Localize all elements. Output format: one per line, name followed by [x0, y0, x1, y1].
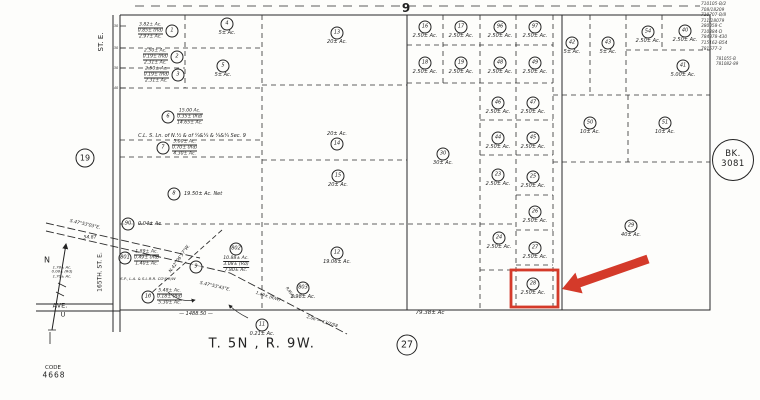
parcel-acreage-label: 20± Ac. — [327, 131, 347, 137]
parcel-number-circle: 49 — [529, 57, 542, 70]
parcel-number-circle: 10 — [142, 291, 155, 304]
parcel-acreage-label: 2.50± Ac. — [488, 33, 513, 39]
parcel-acreage-label: 2.50± Ac. — [636, 38, 661, 44]
parcel-number-circle: 23 — [492, 169, 505, 182]
parcel-number-circle: 47 — [527, 97, 540, 110]
parcel-acreage-stack: 2.50± Ac.0.19± (Rd)2.31± Ac. — [144, 67, 169, 84]
parcel-number-circle: 801 — [119, 252, 132, 265]
parcel-number-circle: 8 — [168, 188, 181, 201]
book-number: 3081 — [721, 160, 745, 170]
parcel-acreage-label: 2.50± Ac. — [413, 33, 438, 39]
parcel-number-circle: 26 — [529, 206, 542, 219]
parcel-number-circle: 14 — [331, 138, 344, 151]
parcel-number-circle: 96 — [494, 21, 507, 34]
parcel-number-circle: 6 — [162, 111, 175, 124]
parcel-acreage-label: 2.50± Ac. — [673, 37, 698, 43]
parcel-acreage-label: 0.21± Ac. — [250, 331, 275, 337]
parcel-number-circle: 802 — [230, 243, 243, 256]
parcel-acreage-label: 30± Ac. — [433, 160, 453, 166]
parcel-acreage-label: 5± Ac. — [600, 49, 617, 55]
parcel-number-circle: 2 — [171, 51, 184, 64]
parcel-acreage-label: 2.50± Ac. — [449, 69, 474, 75]
parcel-number-circle: 17 — [455, 21, 468, 34]
parcel-number-circle: 48 — [494, 57, 507, 70]
parcel-acreage-label: 2.50± Ac. — [521, 144, 546, 150]
parcel-acreage-label: 2.98± Ac. — [291, 294, 316, 300]
parcel-number-circle: 19 — [455, 57, 468, 70]
parcel-number-circle: 42 — [566, 37, 579, 50]
parcel-acreage-label: 2.50± Ac. — [488, 69, 513, 75]
parcel-number-circle: 12 — [331, 247, 344, 260]
parcel-number-circle: 51 — [659, 117, 672, 130]
parcel-acreage-label: 19.06± Ac. — [323, 259, 351, 265]
parcel-number-circle: 4 — [221, 18, 234, 31]
adjacent-page-number: 19 — [80, 154, 90, 163]
parcel-acreage-label: 2.50± Ac. — [449, 33, 474, 39]
north-arrow-icon — [48, 244, 66, 344]
parcel-acreage-stack: 10.88± Ac.3.08± (Rd)7.80± Ac. — [223, 256, 249, 273]
parcel-acreage-label: 2.50± Ac. — [523, 69, 548, 75]
parcel-number-circle: 27 — [529, 242, 542, 255]
parcel-acreage-label: 2.50± Ac. — [413, 69, 438, 75]
parcel-number-circle: 97 — [529, 21, 542, 34]
parcel-number-circle: 40 — [679, 25, 692, 38]
recorder-reference-list: 710105-B/2708/18209710707-B/8711/1807938… — [701, 2, 759, 52]
parcel-acreage-label: 2.50± Ac. — [523, 218, 548, 224]
parcel-number-circle: 44 — [492, 132, 505, 145]
parcel-number-circle: 24 — [493, 232, 506, 245]
parcel-acreage-stack: 2.50± Ac.0.19± (Rd)2.31± Ac. — [143, 49, 168, 66]
parcel-acreage-label: 2.50± Ac. — [523, 33, 548, 39]
parcel-acreage-label: 5± Ac. — [219, 30, 236, 36]
parcel-acreage-stack: 5.00± Ac.0.70± (Rd)4.30± Ac. — [172, 140, 197, 157]
parcel-acreage-label: 2.50± Ac. — [521, 109, 546, 115]
parcel-acreage-label: 2.50± Ac. — [486, 181, 511, 187]
highlight-arrow-icon — [562, 255, 650, 294]
parcel-number-circle: 3 — [172, 69, 185, 82]
parcel-number-circle: 54 — [642, 26, 655, 39]
map-linework — [0, 0, 760, 400]
parcel-acreage-label: 2.50± Ac. — [486, 144, 511, 150]
book-circle: BK. 3081 — [712, 139, 754, 181]
parcel-number-circle: 29 — [625, 220, 638, 233]
parcel-acreage-stack: 3.82± Ac.0.85± (Rd)2.97± Ac. — [138, 23, 163, 40]
parcel-acreage-label: 2.50± Ac. — [523, 254, 548, 260]
parcel-number-circle: 30 — [437, 148, 450, 161]
assessor-map-page: 13.82± Ac.0.85± (Rd)2.97± Ac.22.50± Ac.0… — [0, 0, 760, 400]
parcel-acreage-label: 10± Ac. — [655, 129, 675, 135]
parcel-number-circle: 90 — [122, 218, 135, 231]
parcel-number-circle: 50 — [584, 117, 597, 130]
parcel-number-circle: 46 — [492, 97, 505, 110]
parcel-acreage-label: 5.00± Ac. — [671, 72, 696, 78]
parcel-acreage-stack: 15.00 Ac.0.35± (Rd)14.65± Ac. — [177, 109, 203, 126]
parcel-number-circle: 18 — [419, 57, 432, 70]
parcel-number-circle: 1 — [166, 25, 179, 38]
parcel-acreage-label: 2.50± Ac. — [487, 244, 512, 250]
parcel-acreage-label: 2.50± Ac. — [486, 109, 511, 115]
parcel-acreage-label: 19.50± Ac. Net — [184, 191, 222, 197]
section-circle-number: 27 — [401, 340, 413, 351]
parcel-number-circle: 7 — [157, 142, 170, 155]
parcel-number-circle: 45 — [527, 132, 540, 145]
parcel-number-circle: 13 — [331, 27, 344, 40]
parcel-acreage-label: 5± Ac. — [215, 72, 232, 78]
parcel-acreage-stack: 5.48± Ac.0.18± (Rd)5.30± Ac. — [157, 289, 182, 306]
parcel-acreage-label: 20± Ac. — [327, 39, 347, 45]
recorder-reference-list-2: 781055-B781082-89 — [716, 56, 760, 67]
parcel-number-circle: 28 — [527, 278, 540, 291]
parcel-acreage-label: 2.50± Ac. — [521, 183, 546, 189]
adjacent-page-circle: 19 — [76, 149, 95, 168]
parcel-number-circle: 15 — [332, 170, 345, 183]
parcel-acreage-label: 40± Ac. — [621, 232, 641, 238]
parcel-number-circle: 16 — [419, 21, 432, 34]
parcel-acreage-label: 5± Ac. — [564, 49, 581, 55]
parcel-number-circle: 11 — [256, 319, 269, 332]
parcel-acreage-label: 0.04± Ac. — [138, 221, 163, 227]
parcel-acreage-label: 20± Ac. — [328, 182, 348, 188]
parcel-number-circle: 803 — [297, 282, 310, 295]
parcel-acreage-stack: 1.89± Ac.0.49± (Rd)1.40± Ac. — [134, 250, 159, 267]
parcel-number-circle: 25 — [527, 171, 540, 184]
parcel-acreage-label: 10± Ac. — [580, 129, 600, 135]
parcel-number-circle: 9 — [190, 261, 203, 274]
parcel-number-circle: 41 — [677, 60, 690, 73]
parcel-number-circle: 43 — [602, 37, 615, 50]
parcel-acreage-label: 2.50± Ac. — [521, 290, 546, 296]
parcel-number-circle: 5 — [217, 60, 230, 73]
section-circle: 27 — [397, 335, 418, 356]
